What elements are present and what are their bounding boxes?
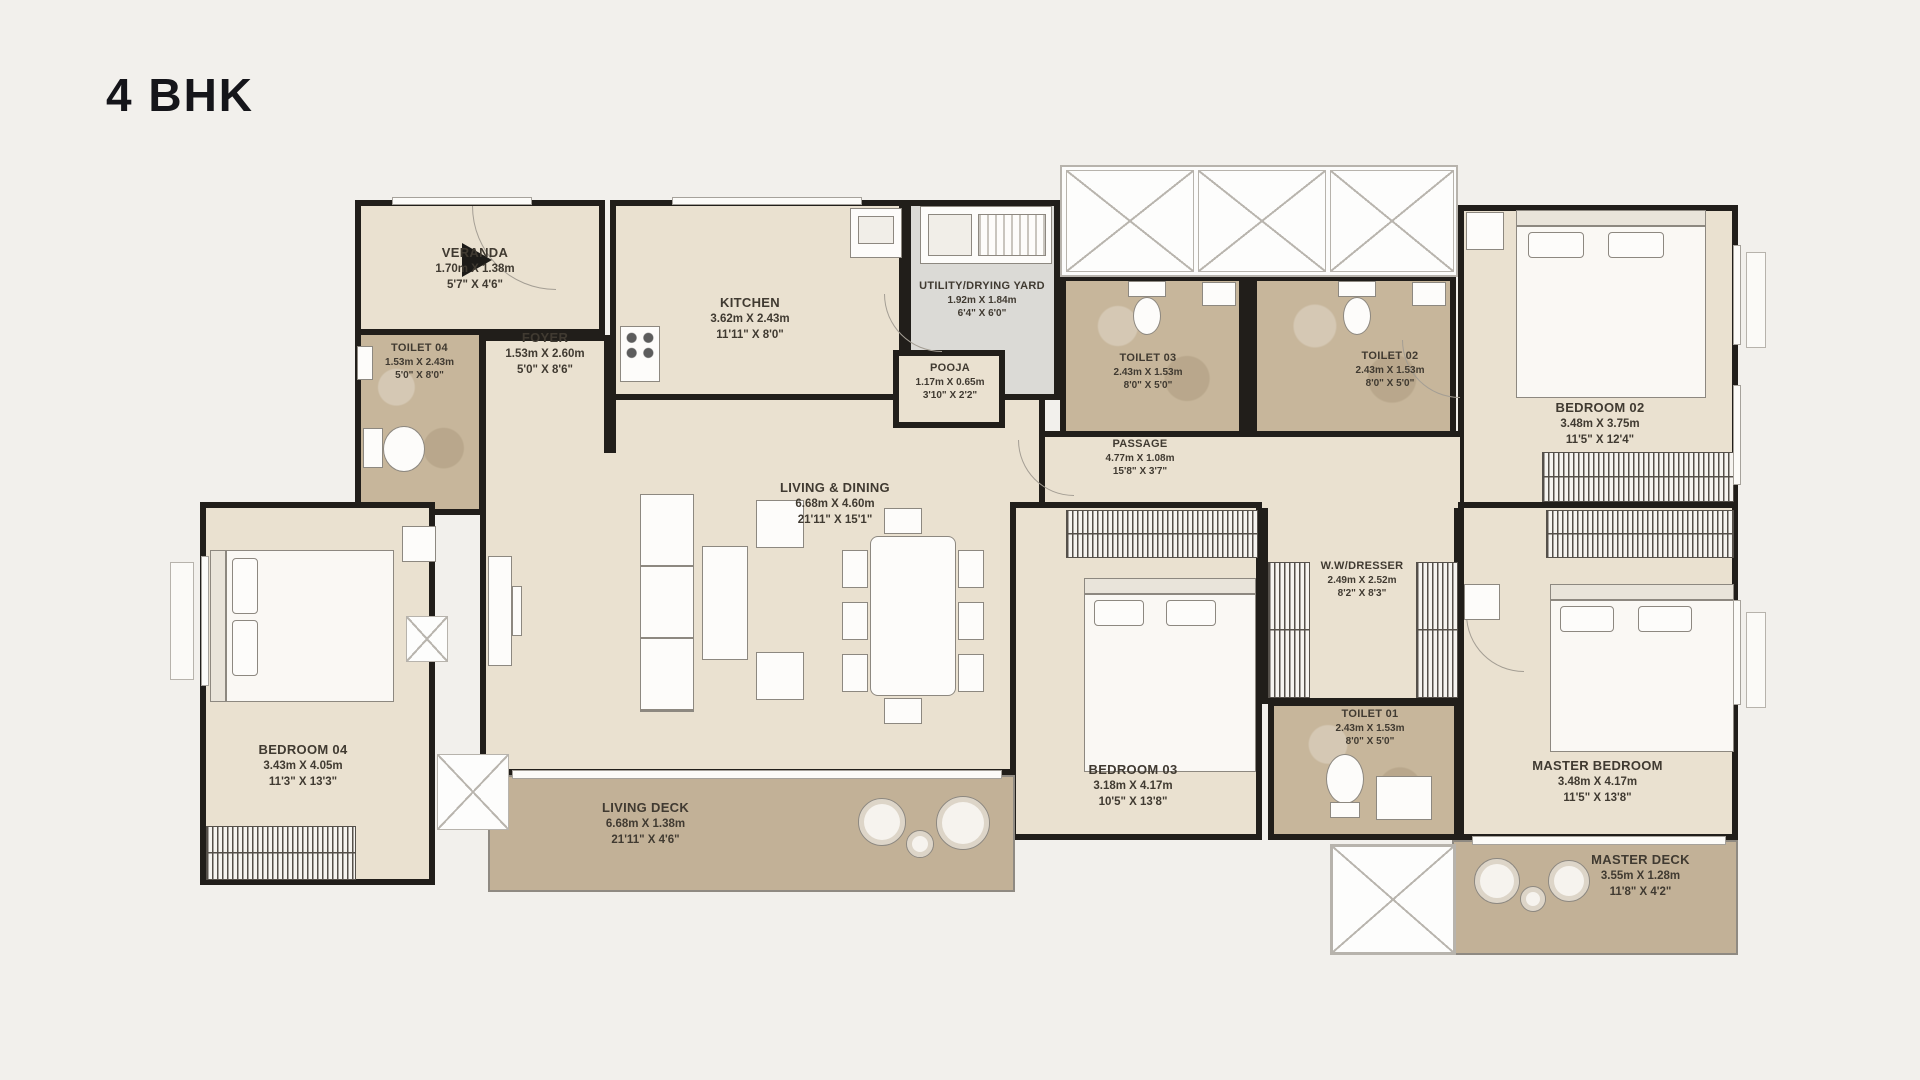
room-dim-ft: 15'8" X 3'7" bbox=[1060, 466, 1220, 479]
planter bbox=[906, 830, 934, 858]
stove bbox=[620, 326, 660, 382]
toilet-bowl-toilet-01 bbox=[1326, 754, 1364, 804]
room-label-pooja: POOJA 1.17m X 0.65m 3'10" X 2'2" bbox=[898, 362, 1002, 403]
room-dim-ft: 8'0" X 5'0" bbox=[1290, 736, 1450, 749]
duct-cross-panel bbox=[1066, 170, 1194, 272]
room-dim-m: 3.18m X 4.17m bbox=[1053, 779, 1213, 793]
dining-chair bbox=[842, 654, 868, 692]
window bbox=[1733, 385, 1741, 485]
planter bbox=[1474, 858, 1520, 904]
room-label-passage: PASSAGE 4.77m X 1.08m 15'8" X 3'7" bbox=[1060, 438, 1220, 479]
tv-screen bbox=[512, 586, 522, 636]
room-dim-m: 2.43m X 1.53m bbox=[1290, 723, 1450, 736]
window bbox=[392, 197, 532, 205]
room-name: LIVING DECK bbox=[563, 800, 728, 816]
room-name: BEDROOM 03 bbox=[1053, 762, 1213, 778]
headboard-bedroom-03 bbox=[1084, 578, 1256, 594]
room-dim-m: 4.77m X 1.08m bbox=[1060, 453, 1220, 466]
kitchen-sink-basin bbox=[858, 216, 894, 244]
toilet-bowl-toilet-02 bbox=[1343, 297, 1371, 335]
room-label-foyer: FOYER 1.53m X 2.60m 5'0" X 8'6" bbox=[465, 330, 625, 377]
room-dim-ft: 6'4" X 6'0" bbox=[912, 308, 1052, 321]
room-label-bedroom-04: BEDROOM 04 3.43m X 4.05m 11'3" X 13'3" bbox=[223, 742, 383, 789]
room-label-living-dining: LIVING & DINING 6.68m X 4.60m 21'11" X 1… bbox=[740, 480, 930, 527]
room-name: BEDROOM 04 bbox=[223, 742, 383, 758]
room-label-master-bedroom: MASTER BEDROOM 3.48m X 4.17m 11'5" X 13'… bbox=[1505, 758, 1690, 805]
dining-chair bbox=[958, 602, 984, 640]
washbasin-toilet-01 bbox=[1376, 776, 1432, 820]
planter bbox=[1520, 886, 1546, 912]
room-dim-m: 3.62m X 2.43m bbox=[665, 312, 835, 326]
window bbox=[1733, 600, 1741, 705]
room-dim-ft: 5'0" X 8'6" bbox=[465, 363, 625, 377]
room-dim-ft: 3'10" X 2'2" bbox=[898, 390, 1002, 403]
pillow bbox=[1166, 600, 1216, 626]
nightstand-master-bedroom bbox=[1464, 584, 1500, 620]
wardrobe-bedroom-03 bbox=[1066, 510, 1258, 558]
room-name: TOILET 01 bbox=[1290, 708, 1450, 722]
sliding-window-master-deck bbox=[1472, 836, 1726, 845]
room-dim-ft: 21'11" X 15'1" bbox=[740, 513, 930, 527]
nightstand-bedroom-02 bbox=[1466, 212, 1504, 250]
room-label-toilet-01: TOILET 01 2.43m X 1.53m 8'0" X 5'0" bbox=[1290, 708, 1450, 749]
utility-drainboard bbox=[978, 214, 1046, 256]
room-dim-m: 3.48m X 3.75m bbox=[1510, 417, 1690, 431]
room-dim-ft: 11'5" X 12'4" bbox=[1510, 433, 1690, 447]
room-name: UTILITY/DRYING YARD bbox=[912, 280, 1052, 294]
room-label-utility-drying-yard: UTILITY/DRYING YARD 1.92m X 1.84m 6'4" X… bbox=[912, 280, 1052, 321]
room-dim-ft: 8'0" X 5'0" bbox=[1068, 380, 1228, 393]
room-label-living-deck: LIVING DECK 6.68m X 1.38m 21'11" X 4'6" bbox=[563, 800, 728, 847]
room-dim-ft: 8'0" X 5'0" bbox=[1310, 378, 1470, 391]
pillow bbox=[1094, 600, 1144, 626]
wardrobe-bedroom-02 bbox=[1542, 452, 1734, 502]
duct-cross-panel bbox=[1332, 846, 1454, 953]
room-label-toilet-03: TOILET 03 2.43m X 1.53m 8'0" X 5'0" bbox=[1068, 352, 1228, 393]
dining-chair bbox=[842, 602, 868, 640]
toilet-bowl-toilet-04 bbox=[383, 426, 425, 472]
room-name: KITCHEN bbox=[665, 295, 835, 311]
room-name: POOJA bbox=[898, 362, 1002, 376]
room-dim-ft: 11'11" X 8'0" bbox=[665, 328, 835, 342]
room-name: FOYER bbox=[465, 330, 625, 346]
room-name: MASTER BEDROOM bbox=[1505, 758, 1690, 774]
room-label-bedroom-03: BEDROOM 03 3.18m X 4.17m 10'5" X 13'8" bbox=[1053, 762, 1213, 809]
ac-ledge bbox=[170, 562, 194, 680]
room-dim-m: 3.48m X 4.17m bbox=[1505, 775, 1690, 789]
room-dim-m: 2.49m X 2.52m bbox=[1272, 575, 1452, 588]
planter bbox=[936, 796, 990, 850]
toilet-bowl-toilet-03 bbox=[1133, 297, 1161, 335]
room-name: PASSAGE bbox=[1060, 438, 1220, 452]
room-name: W.W/DRESSER bbox=[1272, 560, 1452, 574]
room-dim-m: 1.17m X 0.65m bbox=[898, 377, 1002, 390]
wardrobe-master-bedroom bbox=[1546, 510, 1734, 558]
room-dim-m: 1.70m X 1.38m bbox=[390, 262, 560, 276]
utility-sink-basin bbox=[928, 214, 972, 256]
room-dim-ft: 10'5" X 13'8" bbox=[1053, 795, 1213, 809]
headboard-bedroom-02 bbox=[1516, 210, 1706, 226]
window bbox=[672, 197, 862, 205]
headboard-bedroom-04 bbox=[210, 550, 226, 702]
room-label-kitchen: KITCHEN 3.62m X 2.43m 11'11" X 8'0" bbox=[665, 295, 835, 342]
room-name: VERANDA bbox=[390, 245, 560, 261]
ac-ledge bbox=[1746, 252, 1766, 348]
room-label-master-deck: MASTER DECK 3.55m X 1.28m 11'8" X 4'2" bbox=[1553, 852, 1728, 899]
dining-chair bbox=[884, 698, 922, 724]
room-dim-m: 3.43m X 4.05m bbox=[223, 759, 383, 773]
duct-cross-panel bbox=[406, 616, 448, 662]
pillow bbox=[1560, 606, 1614, 632]
pillow bbox=[1638, 606, 1692, 632]
room-label-ww-dresser: W.W/DRESSER 2.49m X 2.52m 8'2" X 8'3" bbox=[1272, 560, 1452, 601]
room-dim-m: 2.43m X 1.53m bbox=[1310, 365, 1470, 378]
toilet-tank-toilet-03 bbox=[1128, 281, 1166, 297]
room-dim-m: 3.55m X 1.28m bbox=[1553, 869, 1728, 883]
washbasin-toilet-02 bbox=[1412, 282, 1446, 306]
sliding-window-living-deck bbox=[512, 770, 1002, 779]
toilet-tank-toilet-04 bbox=[363, 428, 383, 468]
duct-cross-panel bbox=[437, 754, 509, 830]
headboard-master-bedroom bbox=[1550, 584, 1734, 600]
pillow bbox=[232, 620, 258, 676]
floor-plan: 4 BHK bbox=[0, 0, 1920, 1080]
room-dim-ft: 8'2" X 8'3" bbox=[1272, 588, 1452, 601]
ac-ledge bbox=[1746, 612, 1766, 708]
pillow bbox=[1528, 232, 1584, 258]
room-dim-ft: 11'5" X 13'8" bbox=[1505, 791, 1690, 805]
window bbox=[201, 556, 209, 686]
coffee-table bbox=[702, 546, 748, 660]
room-dim-m: 2.43m X 1.53m bbox=[1068, 367, 1228, 380]
room-name: MASTER DECK bbox=[1553, 852, 1728, 868]
pillow bbox=[1608, 232, 1664, 258]
duct-cross-panel bbox=[1198, 170, 1326, 272]
room-dim-m: 6.68m X 4.60m bbox=[740, 497, 930, 511]
washbasin-toilet-03 bbox=[1202, 282, 1236, 306]
pillow bbox=[232, 558, 258, 614]
duct-cross-panel bbox=[1330, 170, 1454, 272]
room-label-veranda: VERANDA 1.70m X 1.38m 5'7" X 4'6" bbox=[390, 245, 560, 292]
sofa bbox=[640, 494, 694, 712]
room-dim-m: 6.68m X 1.38m bbox=[563, 817, 728, 831]
room-label-bedroom-02: BEDROOM 02 3.48m X 3.75m 11'5" X 12'4" bbox=[1510, 400, 1690, 447]
room-name: TOILET 02 bbox=[1310, 350, 1470, 364]
room-dim-m: 1.92m X 1.84m bbox=[912, 295, 1052, 308]
wardrobe-bedroom-04 bbox=[206, 826, 356, 880]
room-dim-ft: 5'7" X 4'6" bbox=[390, 278, 560, 292]
armchair bbox=[756, 652, 804, 700]
room-dim-ft: 11'3" X 13'3" bbox=[223, 775, 383, 789]
tv-unit bbox=[488, 556, 512, 666]
room-dim-ft: 11'8" X 4'2" bbox=[1553, 885, 1728, 899]
room-dim-ft: 21'11" X 4'6" bbox=[563, 833, 728, 847]
room-name: BEDROOM 02 bbox=[1510, 400, 1690, 416]
toilet-tank-toilet-01 bbox=[1330, 802, 1360, 818]
wall-toilet-divider bbox=[1241, 277, 1255, 435]
room-dim-m: 1.53m X 2.60m bbox=[465, 347, 625, 361]
dining-chair bbox=[958, 654, 984, 692]
planter bbox=[858, 798, 906, 846]
dining-chair bbox=[958, 550, 984, 588]
room-name: LIVING & DINING bbox=[740, 480, 930, 496]
side-table-bedroom-04 bbox=[402, 526, 436, 562]
room-label-toilet-02: TOILET 02 2.43m X 1.53m 8'0" X 5'0" bbox=[1310, 350, 1470, 391]
room-name: TOILET 03 bbox=[1068, 352, 1228, 366]
dining-table bbox=[870, 536, 956, 696]
dining-chair bbox=[842, 550, 868, 588]
toilet-tank-toilet-02 bbox=[1338, 281, 1376, 297]
window bbox=[1733, 245, 1741, 345]
page-title: 4 BHK bbox=[106, 68, 254, 122]
